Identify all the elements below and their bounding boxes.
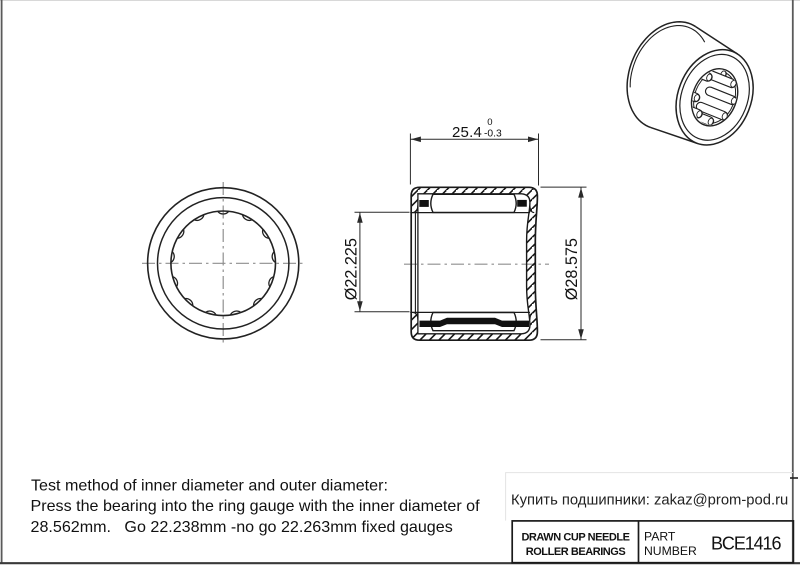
svg-text:NUMBER: NUMBER bbox=[644, 544, 697, 558]
svg-text:25.4: 25.4 bbox=[452, 124, 482, 141]
svg-text:Press the bearing into the rin: Press the bearing into the ring gauge wi… bbox=[31, 497, 481, 515]
svg-text:ROLLER BEARINGS: ROLLER BEARINGS bbox=[526, 546, 626, 558]
svg-text:-0.3: -0.3 bbox=[484, 128, 502, 139]
svg-text:BCE1416: BCE1416 bbox=[711, 534, 781, 554]
svg-text:Test method of inner diameter: Test method of inner diameter and outer … bbox=[31, 477, 388, 495]
svg-text:Купить подшипники: zakaz@prom-: Купить подшипники: zakaz@prom-pod.ru bbox=[511, 493, 788, 509]
svg-text:Ø28.575: Ø28.575 bbox=[563, 238, 581, 300]
svg-text:DRAWN CUP NEEDLE: DRAWN CUP NEEDLE bbox=[521, 532, 629, 544]
svg-text:0: 0 bbox=[487, 117, 492, 128]
svg-text:28.562mm. Go 22.238mm -no go: 28.562mm. Go 22.238mm -no go 22.263mm fi… bbox=[31, 518, 453, 536]
svg-text:PART: PART bbox=[644, 530, 676, 544]
svg-text:Ø22.225: Ø22.225 bbox=[342, 238, 360, 300]
